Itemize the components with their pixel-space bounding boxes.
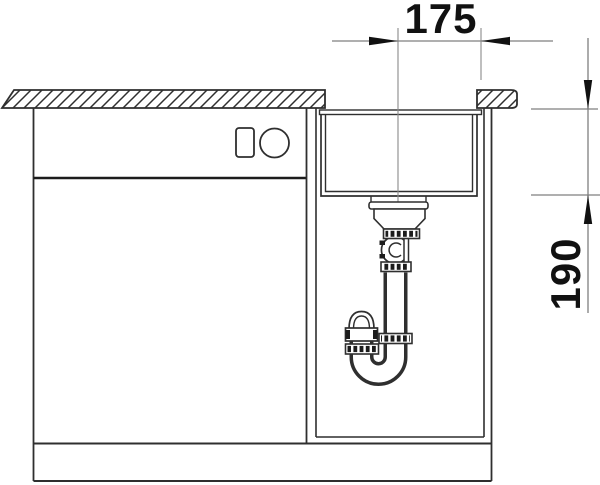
dimension-arrow-right xyxy=(481,37,510,45)
dimension-width-label: 175 xyxy=(404,0,477,42)
base-cabinet xyxy=(34,108,492,481)
elbow-nut-tab-top xyxy=(380,241,386,246)
threaded-coupling-downpipe xyxy=(379,334,412,344)
strainer-body xyxy=(374,209,425,229)
drain-flange-plate xyxy=(369,202,428,209)
threaded-coupling-strainer xyxy=(384,229,420,239)
panel-rectangle-symbol xyxy=(236,128,254,157)
sink-flange xyxy=(320,110,482,115)
nut-tab-right xyxy=(373,330,378,339)
threaded-coupling-elbow xyxy=(381,262,411,272)
elbow-nut-tab-bottom xyxy=(380,254,386,259)
dimension-arrow-down xyxy=(584,80,592,109)
outlet-compression-nut xyxy=(346,328,378,341)
nut-tab-left xyxy=(346,330,351,339)
dimension-depth: 190 xyxy=(531,38,600,313)
countertop-cross-section xyxy=(2,90,517,108)
dimension-width: 175 xyxy=(332,0,553,80)
bowl-outer-wall xyxy=(321,115,477,197)
outlet-dome-outer xyxy=(349,312,374,330)
dimension-arrow-left xyxy=(369,37,398,45)
sink-installation-drawing: 175 190 xyxy=(0,0,600,485)
sink-bowl xyxy=(320,110,482,196)
technical-drawing-canvas: 175 190 xyxy=(0,0,600,485)
countertop-left-slab xyxy=(2,90,325,108)
drain-assembly xyxy=(346,196,429,374)
threaded-coupling-riser xyxy=(346,344,379,354)
bowl-inner-wall xyxy=(326,115,473,192)
panel-circle-symbol xyxy=(260,129,289,158)
countertop-right-slab xyxy=(477,90,517,108)
trap-elbow xyxy=(380,237,409,264)
trap-outlet xyxy=(346,312,379,355)
dimension-depth-label: 190 xyxy=(542,237,589,310)
dimension-arrow-up xyxy=(584,195,592,224)
